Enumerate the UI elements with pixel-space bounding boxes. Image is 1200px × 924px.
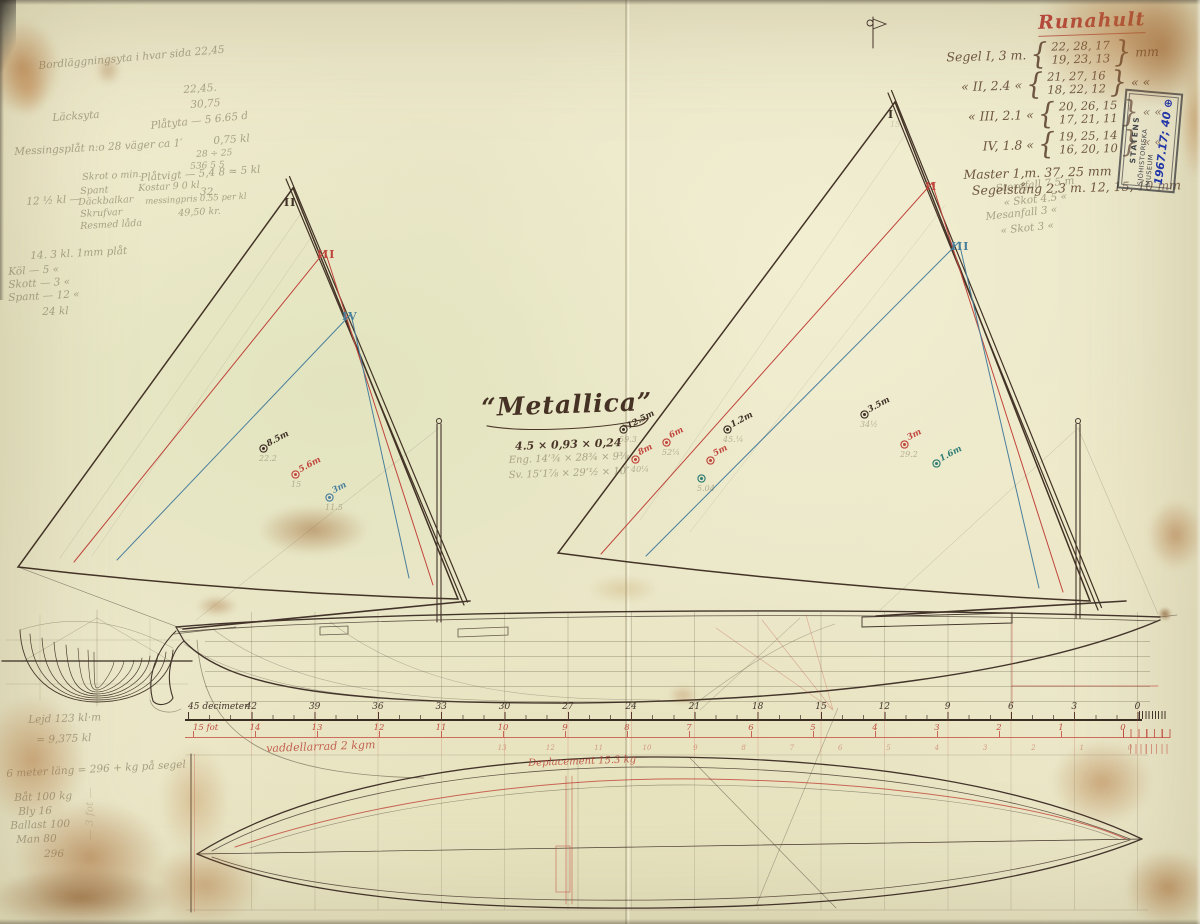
ruler-dm-label: 36 <box>372 702 383 712</box>
brace-open: { <box>1026 69 1044 99</box>
ruler-fot-label: 13 <box>312 723 323 733</box>
scan-edge-bottom <box>0 919 1200 924</box>
ruler-fot2-label: 9 <box>693 744 697 752</box>
ruler-dm-label: 30 <box>499 702 510 712</box>
handwritten-note: Ballast 100 <box>10 818 70 832</box>
sail-row-label: IV, 1.8 « <box>983 137 1035 153</box>
ruler-fot2-label: 10 <box>643 744 652 752</box>
handwritten-note: Båt 100 kg <box>14 790 72 804</box>
sail-row-bottom-values: 19, 23, 13 <box>1052 52 1111 67</box>
masthead-pennant-icon <box>867 17 886 48</box>
ruler-dm-label: 21 <box>689 702 700 712</box>
ruler-fot-label: 11 <box>436 723 447 733</box>
ruler-dm-label: 6 <box>1008 702 1014 712</box>
ruler-fot-label: 4 <box>872 723 877 733</box>
sail-size-label: III <box>951 240 969 253</box>
drawing-title-red: Runahult <box>1038 8 1146 37</box>
handwritten-note: = 9,375 kl <box>36 732 92 746</box>
ruler-fot-label: 1 <box>1058 723 1063 733</box>
ruler-fot-label: 5 <box>810 723 815 733</box>
ruler-dm-label: 39 <box>309 702 320 712</box>
ruler-fot-label: 10 <box>498 723 509 733</box>
ruler-fot2-label: 7 <box>790 744 794 752</box>
sail-row-bottom-values: 17, 21, 11 <box>1059 112 1118 127</box>
sail-row-label: Segel I, 3 m. <box>946 47 1026 64</box>
ruler-fot-label: 9 <box>562 723 567 733</box>
handwritten-note: 49,50 kr. <box>178 206 221 219</box>
sail-size-label: II <box>925 180 937 193</box>
brace-open: { <box>1037 99 1055 129</box>
ruler-fot2-label: 3 <box>983 744 987 752</box>
scan-edge-right <box>1196 0 1200 924</box>
sail-size-label: III <box>317 248 335 261</box>
ruler-dm-label: 3 <box>1071 702 1077 712</box>
ruler-fot2-label: 5 <box>886 744 890 752</box>
marker-sub-value: 22.2 <box>259 454 277 463</box>
ruler-fot2-label: 6 <box>838 744 842 752</box>
handwritten-note: 296 <box>44 848 64 860</box>
handwritten-note: — 3 fot — <box>84 788 96 840</box>
sail-row-values: 21, 27, 1618, 22, 12 <box>1047 69 1106 97</box>
ruler-dm-label: 9 <box>945 702 951 712</box>
handwritten-note: 22,45. <box>183 82 217 96</box>
marker-sub-value: 34½ <box>860 420 878 429</box>
marker-sub-value: 29.2 <box>900 450 918 459</box>
brace-open: { <box>1030 39 1048 69</box>
ruler-fot-label: 8 <box>624 723 629 733</box>
sail-row-label: « III, 2.1 « <box>968 107 1034 124</box>
ruler-fot-label: 7 <box>686 723 691 733</box>
waterlines-hull <box>205 641 1150 702</box>
ruler-fot2-label: 8 <box>741 744 745 752</box>
sail-row-bottom-values: 16, 20, 10 <box>1059 142 1118 157</box>
sail-row-unit: « « <box>1131 74 1151 89</box>
marker-dot <box>700 477 703 480</box>
ruler-fot-label: 14 <box>250 723 261 733</box>
marker-sub-value: 45.¼ <box>723 435 743 444</box>
sail-row-values: 22, 28, 1719, 23, 13 <box>1051 39 1110 67</box>
ruler-dm-label: 18 <box>752 702 763 712</box>
marker-dot <box>903 443 906 446</box>
marker-sub-value: 11.5 <box>325 503 343 512</box>
ruler-dm-label: 33 <box>435 702 446 712</box>
handwritten-note: 15 <box>890 120 900 129</box>
brace-close: } <box>1114 37 1132 67</box>
marker-dot <box>863 413 866 416</box>
scanned-boat-drawing: 45 decimeter4239363330272421181512963015… <box>0 0 1200 924</box>
sail-row-values: 20, 26, 1517, 21, 11 <box>1059 99 1118 127</box>
title-block: “Metallica” 4.5 × 0,93 × 0,24 Eng. 14’¾ … <box>467 389 670 485</box>
sail-row-label: « II, 2.4 « <box>961 77 1022 94</box>
ruler-fot-label: 6 <box>748 723 753 733</box>
sail-size-label: II <box>284 196 296 209</box>
marker-sub-value: 15 <box>291 480 301 489</box>
ruler-dm-label: 24 <box>625 702 636 712</box>
station-grid-plan <box>251 756 1139 910</box>
scan-edge-left <box>0 0 4 300</box>
handwritten-note: Skrufvar <box>80 207 123 220</box>
sail-row-bottom-values: 18, 22, 12 <box>1047 82 1106 97</box>
handwritten-note: 28 ÷ 25 <box>196 148 233 160</box>
ruler-dm-label: 27 <box>562 702 573 712</box>
ruler-fot2-label: 2 <box>1031 744 1035 752</box>
marker-dot <box>262 447 265 450</box>
ruler-fot2-label: 11 <box>594 744 603 752</box>
sail-row-unit: mm <box>1135 43 1159 59</box>
handwritten-note: Man 80 <box>16 833 57 846</box>
ruler-fot2-label: 12 <box>546 744 555 752</box>
marker-dot <box>709 459 712 462</box>
handwritten-note: 30,75 <box>190 97 221 111</box>
museum-stamp: STATENS SJÖHISTORISKA MUSEUM 1967.17; 40… <box>1117 89 1183 194</box>
ruler-dm-label: 45 decimeter <box>188 702 248 712</box>
marker-dot <box>935 462 938 465</box>
ruler-fot-label: 2 <box>996 723 1001 733</box>
ruler-fot-label: 0 <box>1120 723 1125 733</box>
ruler-dm-label: 42 <box>246 702 257 712</box>
handwritten-note: Bly 16 <box>18 805 52 818</box>
ruler-dm-label: 15 <box>815 702 826 712</box>
sail-row-values: 19, 25, 1416, 20, 10 <box>1059 129 1118 157</box>
marker-dot <box>328 496 331 499</box>
ruler-comb-black <box>1139 711 1167 719</box>
handwritten-note: Lejd 123 kl·m <box>28 711 101 726</box>
ruler-fot-label: 15 fot <box>193 723 218 733</box>
sail-size-label: IV <box>342 310 358 323</box>
handwritten-note: 0,75 kl <box>213 132 250 147</box>
body-plan <box>2 610 192 706</box>
marker-dot <box>726 428 729 431</box>
sail-left <box>18 177 470 630</box>
ruler-dm-label: 12 <box>879 702 890 712</box>
ruler-fot2-label: 1 <box>1079 744 1083 752</box>
ruler-fot2-label: 0 <box>1128 744 1132 752</box>
ruler-fot-label: 12 <box>374 723 385 733</box>
marker-sub-value: 5.04 <box>697 484 715 493</box>
ruler-fot2-label: 13 <box>498 744 507 752</box>
brace-open: { <box>1038 129 1056 159</box>
ruler-fot2-label: 4 <box>935 744 939 752</box>
ruler-fot-label: 3 <box>934 723 939 733</box>
handwritten-note: 24 kl <box>42 305 69 318</box>
marker-dot <box>294 473 297 476</box>
ruler-dm-label: 0 <box>1135 702 1141 712</box>
museum-stamp-inner: STATENS SJÖHISTORISKA MUSEUM 1967.17; 40… <box>1121 93 1179 189</box>
scan-edge-top <box>0 0 1200 5</box>
